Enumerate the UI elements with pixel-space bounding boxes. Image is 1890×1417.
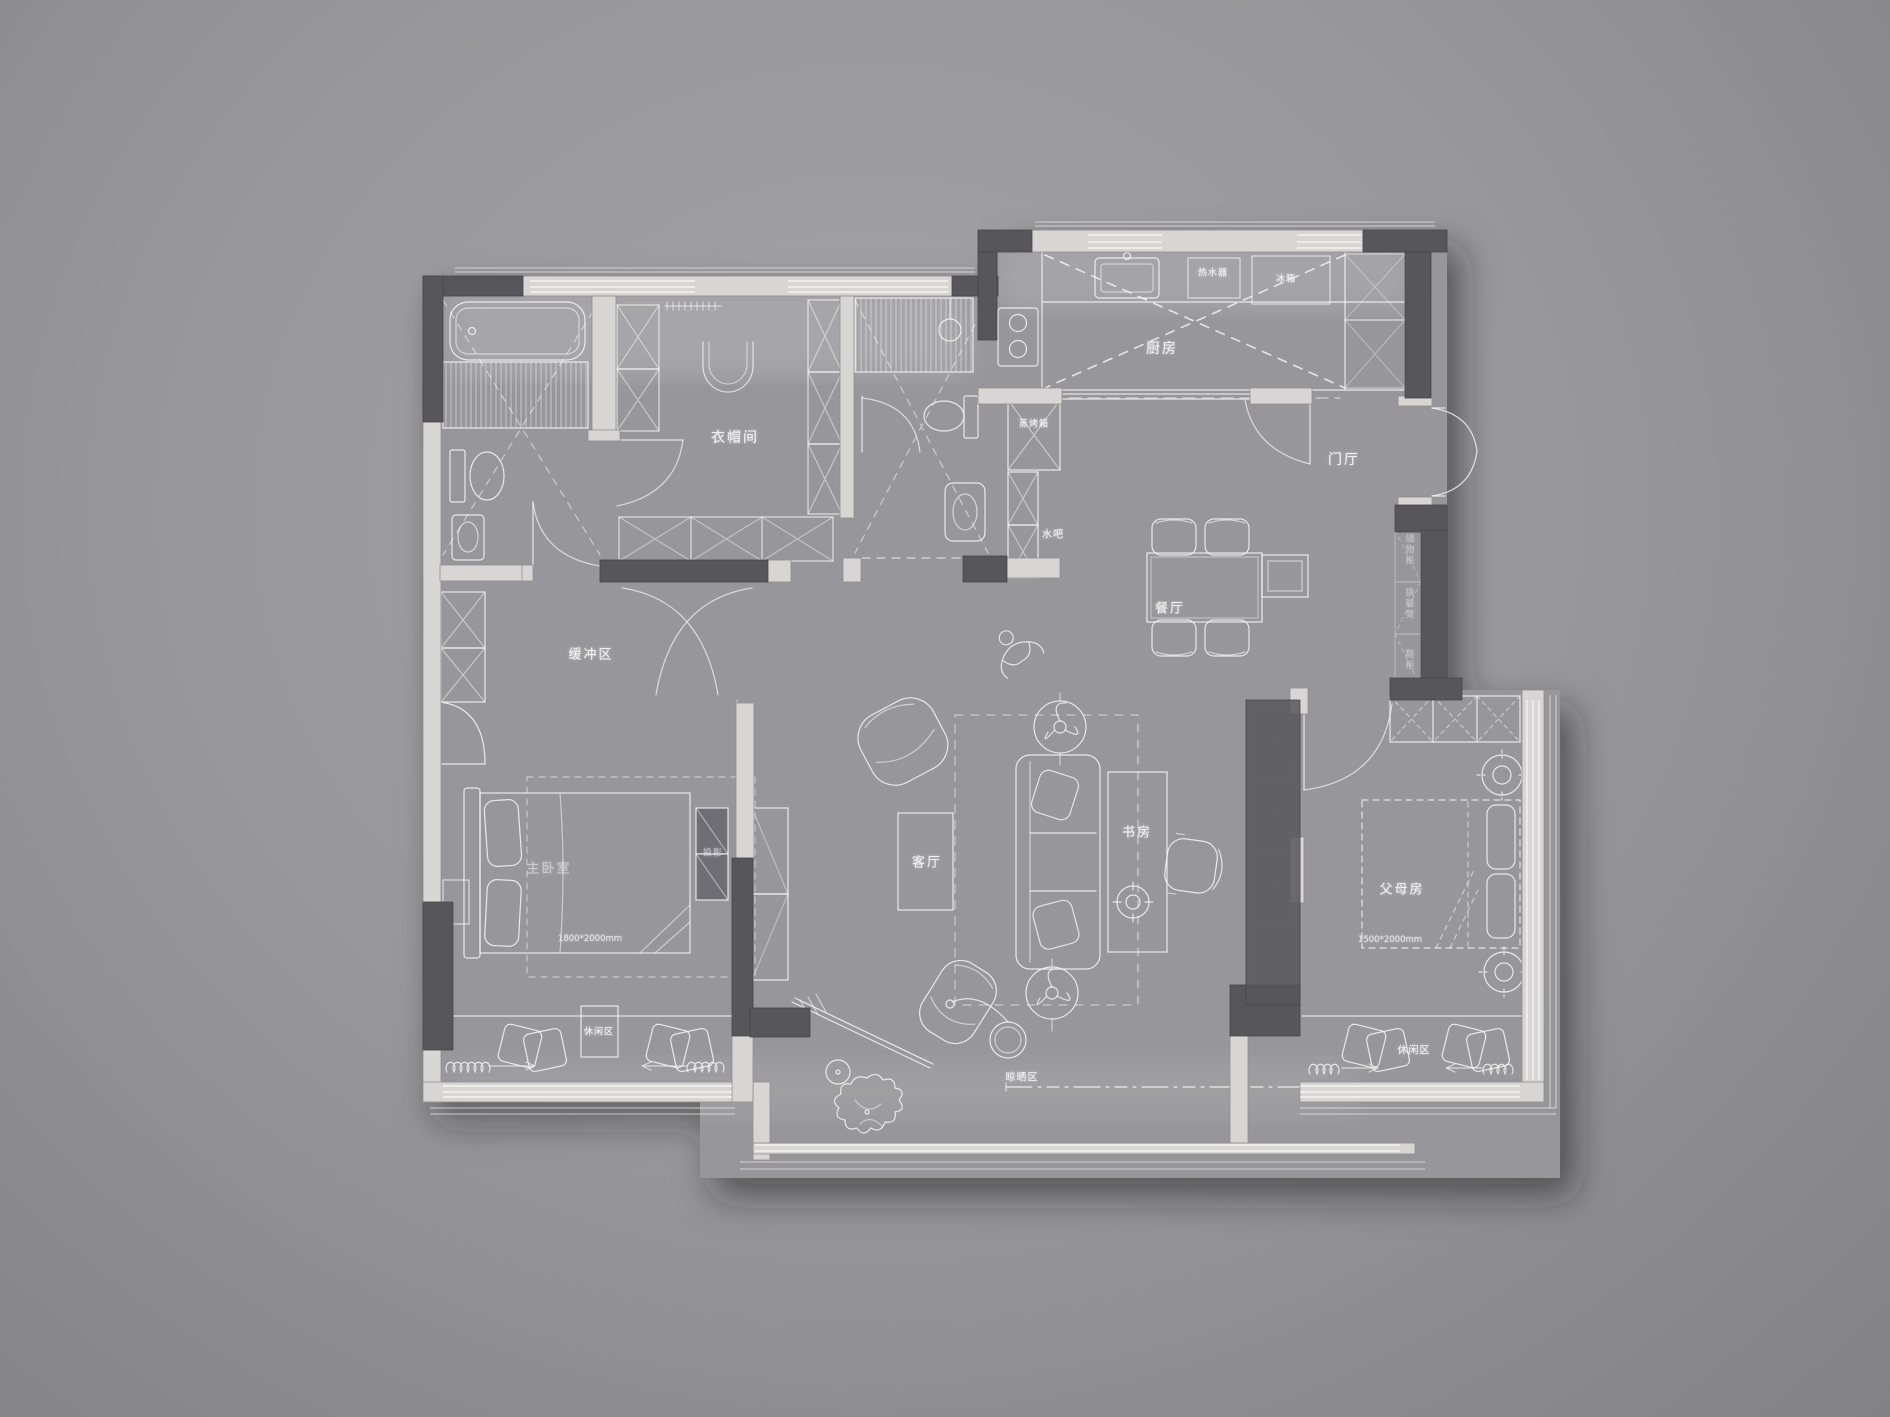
room-label-study: 书房 — [1122, 822, 1152, 841]
floor-plan-stage: 衣帽间 厨房 门厅 餐厅 水吧 缓冲区 主卧室 客厅 书房 父母房 休闲区 休闲… — [0, 0, 1890, 1417]
fixture-label-fridge: 冰箱 — [1276, 272, 1296, 285]
dimension-master-bed: 1800*2000mm — [558, 934, 622, 944]
room-label-cloakroom: 衣帽间 — [711, 427, 759, 447]
room-label-buffer-zone: 缓冲区 — [568, 644, 613, 663]
room-label-kitchen: 厨房 — [1146, 338, 1178, 358]
fixture-label-steam-oven: 蒸烤箱 — [1019, 417, 1049, 430]
room-label-parents-room: 父母房 — [1379, 879, 1424, 898]
room-label-water-bar: 水吧 — [1042, 526, 1064, 541]
fixture-label-entry-storage: 储物柜 — [1403, 534, 1416, 567]
room-label-leisure-parents: 休闲区 — [1398, 1042, 1431, 1057]
room-label-dining: 餐厅 — [1155, 598, 1185, 617]
fixture-label-shoe-cabinet: 鞋柜 — [1403, 649, 1416, 671]
floor-plan-drawing — [0, 0, 1890, 1417]
room-label-living-room: 客厅 — [912, 852, 942, 871]
fixture-label-water-heater: 热水器 — [1198, 266, 1228, 279]
room-label-leisure-master: 休闲区 — [584, 1025, 614, 1038]
room-label-drying-area: 晾晒区 — [1006, 1069, 1039, 1084]
room-label-master-bedroom: 主卧室 — [526, 858, 571, 877]
dimension-parents-bed: 1500*2000mm — [1358, 935, 1422, 945]
room-label-foyer: 门厅 — [1328, 449, 1360, 469]
fixture-label-projector: 投影 — [703, 846, 723, 859]
fixture-label-shoe-bench: 换鞋凳 — [1403, 588, 1416, 621]
